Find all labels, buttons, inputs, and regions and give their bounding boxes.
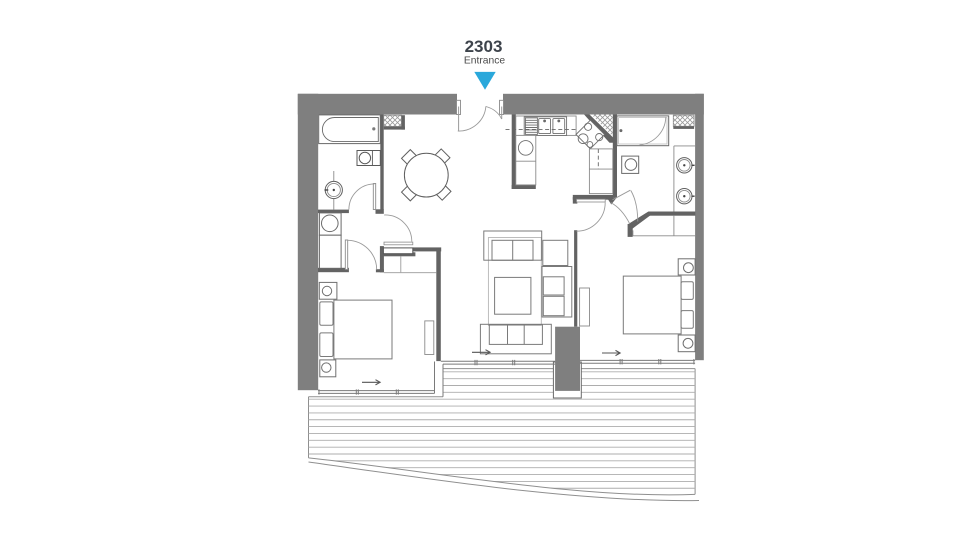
svg-text:2303: 2303	[465, 37, 503, 56]
svg-text:Entrance: Entrance	[464, 56, 505, 67]
